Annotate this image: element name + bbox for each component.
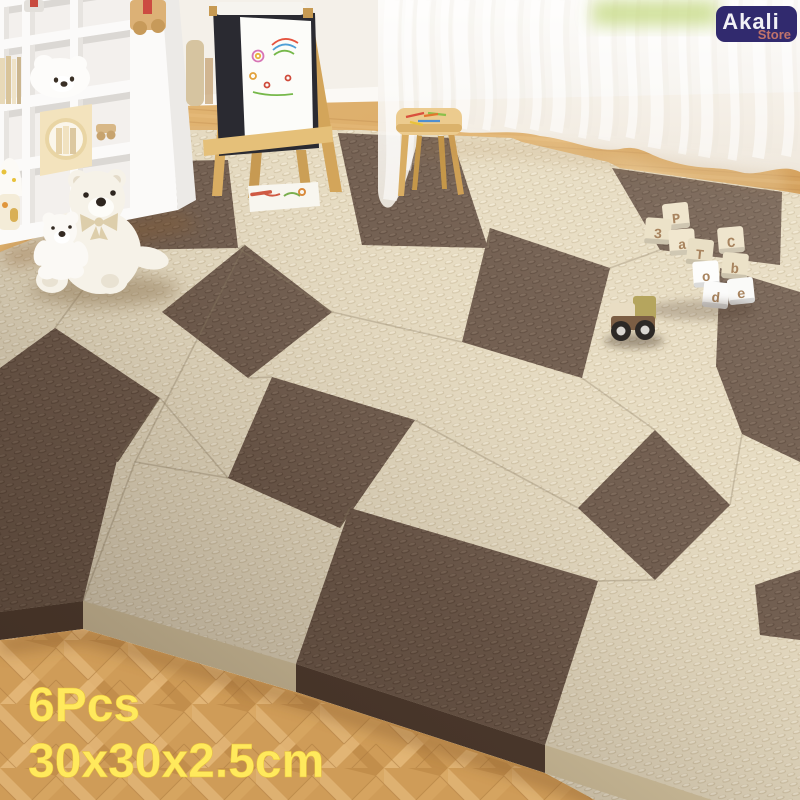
svg-text:P: P bbox=[671, 212, 681, 229]
svg-text:Store: Store bbox=[758, 27, 791, 42]
svg-text:e: e bbox=[736, 287, 746, 304]
svg-text:30x30x2.5cm: 30x30x2.5cm bbox=[28, 735, 324, 788]
svg-text:3: 3 bbox=[653, 227, 663, 244]
svg-text:6Pcs: 6Pcs bbox=[28, 679, 140, 732]
svg-text:b: b bbox=[730, 262, 740, 279]
